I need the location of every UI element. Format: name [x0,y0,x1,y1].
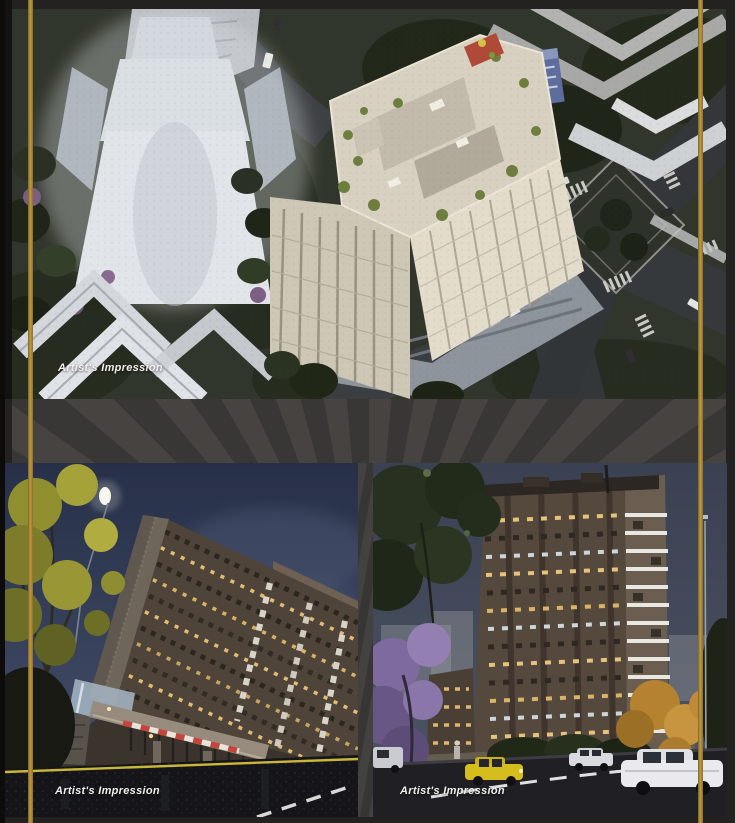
artists-impression-caption: Artist's Impression [55,785,160,797]
night-entrance-art [5,463,358,817]
aerial-site-render: Artist's Impression [12,9,726,399]
brochure-page: Artist's Impression [0,0,735,823]
pedestrian [454,740,460,759]
night-entrance-render: Artist's Impression [5,463,358,817]
night-street-art [373,463,727,817]
artists-impression-caption: Artist's Impression [58,362,163,374]
gold-rule-right [698,0,703,823]
aerial-render-art [12,9,726,399]
gold-rule-left [28,0,33,823]
grain-overlay [12,9,726,399]
image-gutter [358,463,373,817]
artists-impression-caption: Artist's Impression [400,785,505,797]
sunburst-divider [12,399,726,463]
night-street-render: Artist's Impression [373,463,727,817]
page-edge [0,0,5,823]
